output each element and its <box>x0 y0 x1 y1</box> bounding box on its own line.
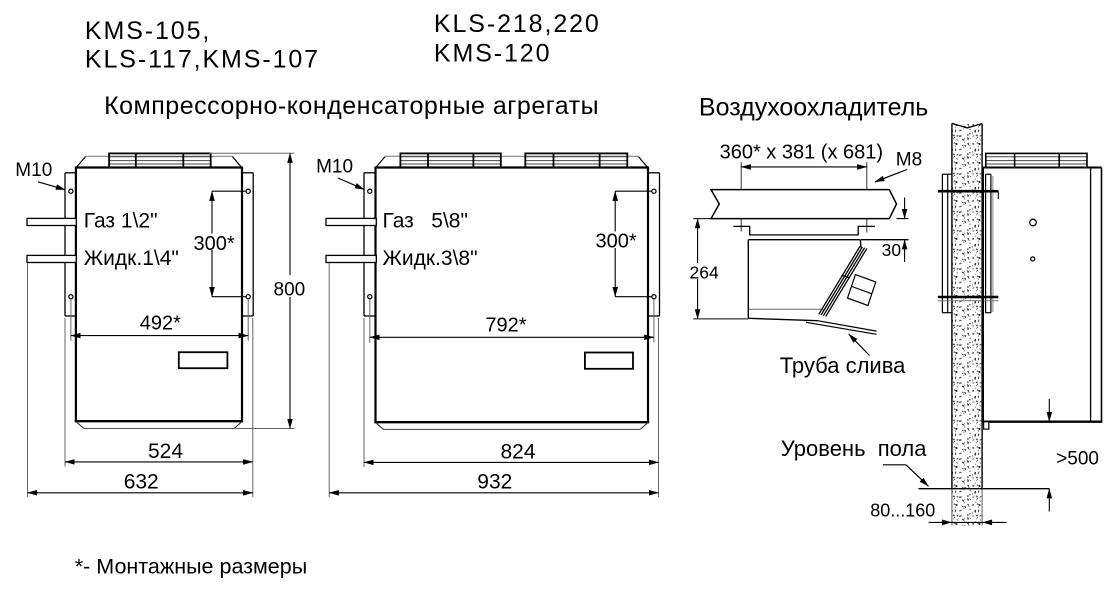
svg-text:Газ 1\2": Газ 1\2" <box>84 210 158 233</box>
svg-text:80...160: 80...160 <box>870 501 935 521</box>
svg-text:Компрессорно-конденсаторные аг: Компрессорно-конденсаторные агрегаты <box>104 92 599 120</box>
svg-text:KLS-117,KMS-107: KLS-117,KMS-107 <box>85 46 320 74</box>
svg-text:824: 824 <box>501 441 536 464</box>
svg-text:KMS-120: KMS-120 <box>434 40 552 68</box>
svg-text:KMS-105,: KMS-105, <box>85 17 211 45</box>
svg-text:Газ 5\8": Газ 5\8" <box>383 210 468 233</box>
svg-text:Жидк.3\8": Жидк.3\8" <box>383 247 478 270</box>
svg-text:264: 264 <box>690 262 719 282</box>
svg-text:*- Монтажные размеры: *- Монтажные размеры <box>75 555 307 579</box>
svg-text:932: 932 <box>477 471 512 494</box>
svg-text:300*: 300* <box>596 231 637 253</box>
svg-text:792*: 792* <box>485 315 526 337</box>
svg-text:300*: 300* <box>194 233 235 255</box>
svg-text:KLS-218,220: KLS-218,220 <box>434 10 601 38</box>
svg-text:M10: M10 <box>316 156 353 177</box>
svg-text:800: 800 <box>274 280 306 301</box>
svg-text:>500: >500 <box>1056 448 1099 469</box>
svg-text:Воздухоохладитель: Воздухоохладитель <box>699 94 928 122</box>
svg-text:524: 524 <box>148 440 183 463</box>
svg-text:Жидк.1\4": Жидк.1\4" <box>84 247 179 270</box>
svg-text:Уровень пола: Уровень пола <box>781 436 927 461</box>
svg-text:492*: 492* <box>140 313 181 335</box>
svg-text:Труба слива: Труба слива <box>780 353 906 378</box>
svg-text:632: 632 <box>124 471 159 494</box>
svg-text:360* x 381 (x 681): 360* x 381 (x 681) <box>720 141 883 163</box>
svg-text:M10: M10 <box>15 160 52 181</box>
svg-text:M8: M8 <box>896 150 922 171</box>
svg-text:30: 30 <box>882 240 902 260</box>
